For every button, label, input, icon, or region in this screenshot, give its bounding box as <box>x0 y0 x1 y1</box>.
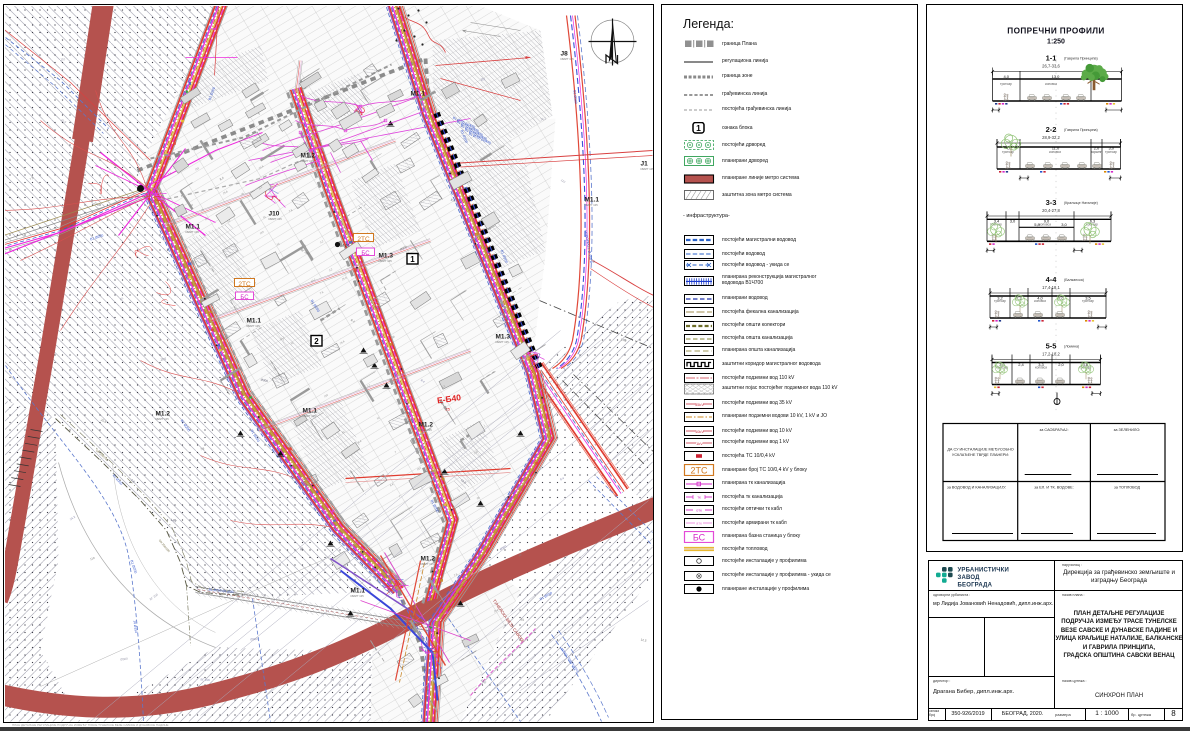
svg-text:атк: атк <box>696 521 702 526</box>
svg-text:тротоар: тротоар <box>1002 150 1014 154</box>
svg-text:М1.1: М1.1 <box>246 317 261 324</box>
svg-text:1kV: 1kV <box>696 440 703 445</box>
svg-text:ВГ 200: ВГ 200 <box>148 592 158 601</box>
svg-text:тротоар: тротоар <box>994 299 1006 303</box>
svg-text:за САОБРАЋАЈ:: за САОБРАЋАЈ: <box>1040 428 1069 432</box>
svg-text:коловоз: коловоз <box>1039 222 1051 226</box>
svg-text:М1.2: М1.2 <box>155 410 170 417</box>
svg-text:коловоз: коловоз <box>1049 150 1061 154</box>
svg-text:УСКЛАЂЕНЕ ТВРДЕ ПЛАНЕРИ:: УСКЛАЂЕНЕ ТВРДЕ ПЛАНЕРИ: <box>952 453 1009 457</box>
svg-text:Ø300: Ø300 <box>120 656 128 661</box>
svg-text:М1.3: М1.3 <box>495 333 510 340</box>
svg-text:БЕОГРАДА: БЕОГРАДА <box>958 582 993 588</box>
svg-text:КВАРТ 105: КВАРТ 105 <box>410 97 424 101</box>
svg-text:ПОПРЕЧНИ ПРОФИЛИ: ПОПРЕЧНИ ПРОФИЛИ <box>1007 26 1104 35</box>
svg-text:КВАРТ 105: КВАРТ 105 <box>268 217 282 221</box>
svg-text:КВАРТ 105: КВАРТ 105 <box>185 230 199 234</box>
svg-text:2-2: 2-2 <box>1046 125 1057 134</box>
svg-text:КВАРТ 105: КВАРТ 105 <box>495 340 509 344</box>
svg-text:4,0: 4,0 <box>1003 74 1009 79</box>
svg-text:В1 Ø200: В1 Ø200 <box>129 559 137 573</box>
svg-text:1:250: 1:250 <box>1047 38 1065 45</box>
svg-text:КВАРТ 105: КВАРТ 105 <box>560 57 574 61</box>
svg-text:М1.2: М1.2 <box>418 421 433 428</box>
svg-text:17,4-18,1: 17,4-18,1 <box>1042 285 1060 290</box>
svg-text:КВАРТ 105: КВАРТ 105 <box>640 167 653 171</box>
svg-text:БС: БС <box>361 251 370 257</box>
svg-text:коловоз: коловоз <box>1045 82 1057 86</box>
svg-text:13,0: 13,0 <box>1052 74 1061 79</box>
svg-text:коловоз: коловоз <box>1034 299 1046 303</box>
svg-text:16 Ø150: 16 Ø150 <box>132 620 138 633</box>
svg-text:КВАРТ 105: КВАРТ 105 <box>420 562 434 566</box>
svg-text:1: 1 <box>696 123 701 133</box>
svg-text:за ТОПЛОВОД: за ТОПЛОВОД <box>1114 485 1140 489</box>
svg-text:12.5: 12.5 <box>640 637 647 642</box>
svg-text:БС: БС <box>240 295 249 301</box>
svg-text:КВАРТ 105: КВАРТ 105 <box>246 324 260 328</box>
svg-text:1: 1 <box>410 255 415 264</box>
svg-text:Ø300: Ø300 <box>250 636 258 641</box>
svg-text:2ТС: 2ТС <box>690 466 708 476</box>
svg-text:паркинг: паркинг <box>1090 150 1102 154</box>
svg-text:М1.3: М1.3 <box>378 252 393 259</box>
svg-text:за ЕЛ. И ТК. ВОДОВЕ:: за ЕЛ. И ТК. ВОДОВЕ: <box>1034 485 1073 489</box>
svg-text:КВАРТ 105: КВАРТ 105 <box>378 259 392 263</box>
svg-text:КВАРТ 105: КВАРТ 105 <box>302 414 316 418</box>
svg-text:ДА СУ ИНСТАЛАЦИЈЕ МЕЂУСОБНО: ДА СУ ИНСТАЛАЦИЈЕ МЕЂУСОБНО <box>947 447 1013 451</box>
svg-text:ВГ 200: ВГ 200 <box>200 677 210 682</box>
svg-text:коловоз: коловоз <box>1035 365 1047 369</box>
svg-text:КВАРТ 105: КВАРТ 105 <box>350 594 364 598</box>
svg-text:10kV: 10kV <box>695 429 704 434</box>
svg-text:М1.1: М1.1 <box>410 90 425 97</box>
svg-text:25: 25 <box>445 406 450 411</box>
svg-text:28,9-32,2: 28,9-32,2 <box>1042 135 1060 140</box>
svg-text:за ВОДОВОД И КАНАЛИЗАЦИЈУ:: за ВОДОВОД И КАНАЛИЗАЦИЈУ: <box>947 485 1006 489</box>
svg-text:Ј-Д1: Ј-Д1 <box>342 243 349 247</box>
svg-text:4-4: 4-4 <box>1046 275 1058 284</box>
svg-text:тротоар: тротоар <box>1000 82 1012 86</box>
svg-text:35kV: 35kV <box>695 401 704 406</box>
svg-text:17,2-18,2: 17,2-18,2 <box>1042 351 1060 356</box>
svg-text:тротоар: тротоар <box>1086 222 1098 226</box>
svg-text:КВАРТ 105: КВАРТ 105 <box>300 159 314 163</box>
svg-text:110: 110 <box>60 57 65 61</box>
svg-text:1-1: 1-1 <box>1046 53 1057 62</box>
svg-text:3,0: 3,0 <box>1061 221 1067 226</box>
svg-text:КВАРТ 105: КВАРТ 105 <box>418 428 432 432</box>
svg-text:(Балканска): (Балканска) <box>1064 278 1084 282</box>
svg-text:3-3: 3-3 <box>1046 198 1057 207</box>
svg-text:(Краљице Наталије): (Краљице Наталије) <box>1064 201 1098 205</box>
svg-text:М1.1: М1.1 <box>350 587 365 594</box>
svg-text:Ј8: Ј8 <box>560 50 568 57</box>
svg-text:2ТС: 2ТС <box>357 236 370 243</box>
svg-text:110: 110 <box>89 555 95 561</box>
svg-text:2ТС: 2ТС <box>238 281 251 288</box>
svg-text:тротоар: тротоар <box>1082 299 1094 303</box>
svg-text:М1.2: М1.2 <box>300 152 315 159</box>
svg-text:тротоар: тротоар <box>1105 150 1117 154</box>
svg-text:ЗАВОД: ЗАВОД <box>958 575 981 581</box>
svg-text:УРБАНИСТИЧКИ: УРБАНИСТИЧКИ <box>958 568 1010 574</box>
svg-text:М1.2: М1.2 <box>420 555 435 562</box>
svg-text:В1 Ø300: В1 Ø300 <box>572 90 577 104</box>
svg-text:110: 110 <box>559 178 565 184</box>
svg-text:12.5: 12.5 <box>160 356 167 361</box>
svg-text:ОК 250/150: ОК 250/150 <box>157 538 170 553</box>
svg-text:110: 110 <box>480 77 485 81</box>
svg-text:КВАРТ 105: КВАРТ 105 <box>584 203 598 207</box>
svg-text:отк: отк <box>696 507 702 512</box>
svg-text:20,4-27,8: 20,4-27,8 <box>1042 208 1060 213</box>
svg-text:5-5: 5-5 <box>1046 341 1057 350</box>
svg-text:(Ломина): (Ломина) <box>1064 344 1079 348</box>
svg-text:26,7-33,6: 26,7-33,6 <box>1042 63 1060 68</box>
svg-text:Ј1: Ј1 <box>640 160 648 167</box>
svg-text:КВАРТ 105: КВАРТ 105 <box>155 417 169 421</box>
svg-text:тк: тк <box>697 495 701 500</box>
svg-text:М1.1: М1.1 <box>584 196 599 203</box>
svg-text:М1.1: М1.1 <box>185 223 200 230</box>
svg-text:(Гаврила Принципа): (Гаврила Принципа) <box>1064 56 1098 60</box>
svg-text:14.2: 14.2 <box>68 514 75 521</box>
svg-text:М1.1: М1.1 <box>302 407 317 414</box>
svg-text:2: 2 <box>314 337 319 346</box>
svg-text:Ј10: Ј10 <box>268 210 279 217</box>
svg-text:(Гаврила Принципа): (Гаврила Принципа) <box>1064 128 1098 132</box>
svg-text:за ЗЕЛЕНИЛО:: за ЗЕЛЕНИЛО: <box>1114 428 1141 432</box>
svg-text:БС: БС <box>693 532 706 542</box>
